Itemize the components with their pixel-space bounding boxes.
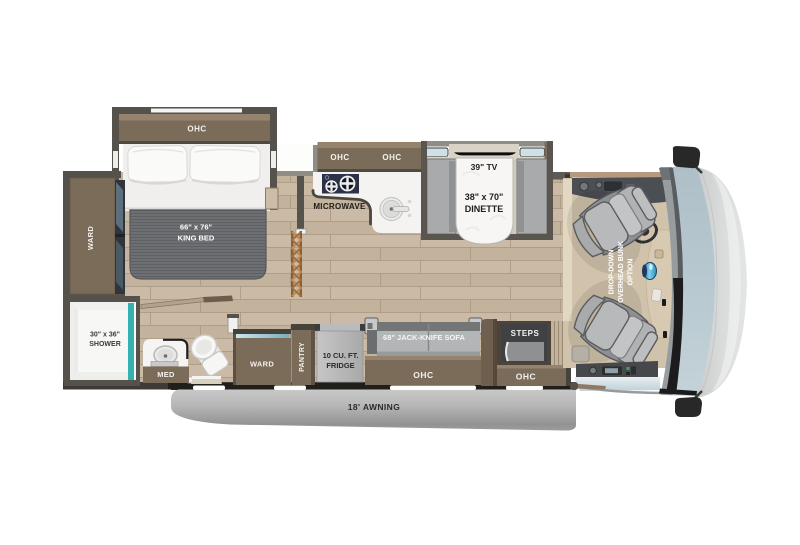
svg-text:SHOWER: SHOWER — [89, 341, 121, 348]
svg-text:WARD: WARD — [86, 226, 95, 250]
svg-text:PANTRY: PANTRY — [299, 342, 306, 372]
svg-text:18' AWNING: 18' AWNING — [348, 402, 400, 412]
svg-text:OVERHEAD BUNK: OVERHEAD BUNK — [618, 241, 625, 303]
svg-text:MICROWAVE: MICROWAVE — [313, 202, 366, 211]
svg-text:MED: MED — [157, 370, 175, 379]
svg-text:FRIDGE: FRIDGE — [326, 361, 354, 370]
svg-text:OHC: OHC — [413, 370, 433, 380]
svg-text:10 CU. FT.: 10 CU. FT. — [323, 351, 359, 360]
svg-text:OPTION: OPTION — [628, 259, 635, 286]
svg-text:39" TV: 39" TV — [471, 162, 498, 172]
svg-text:38" x 70": 38" x 70" — [465, 192, 504, 202]
svg-text:OHC: OHC — [382, 153, 401, 162]
svg-text:DINETTE: DINETTE — [465, 204, 504, 214]
svg-text:DROP-DOWN: DROP-DOWN — [609, 250, 616, 295]
svg-text:WARD: WARD — [250, 360, 274, 369]
svg-text:OHC: OHC — [516, 372, 536, 382]
svg-text:STEPS: STEPS — [511, 329, 540, 338]
svg-text:68" JACK-KNIFE SOFA: 68" JACK-KNIFE SOFA — [383, 333, 465, 342]
svg-text:OHC: OHC — [187, 125, 206, 134]
svg-text:30" x 36": 30" x 36" — [90, 332, 120, 339]
svg-text:66" x 76": 66" x 76" — [180, 223, 213, 232]
svg-text:OHC: OHC — [330, 153, 349, 162]
svg-text:KING BED: KING BED — [178, 234, 215, 243]
